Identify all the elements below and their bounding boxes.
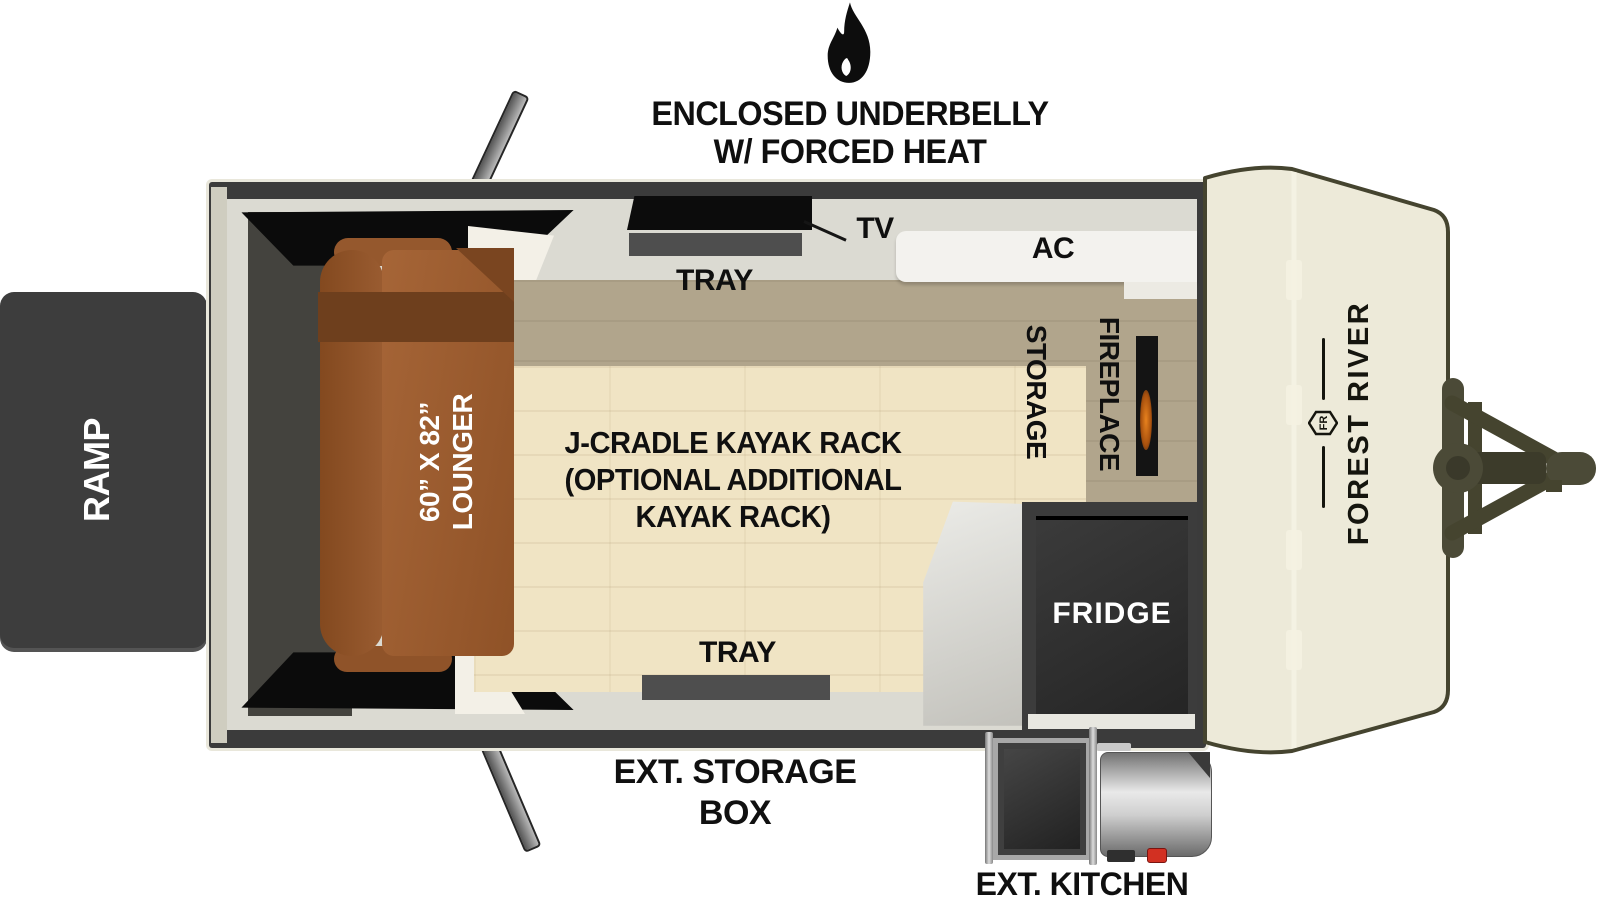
flame-icon (818, 0, 880, 92)
lounger-name: LOUNGER (446, 352, 479, 572)
tray-top-label: TRAY (637, 264, 792, 298)
ext-kitchen-rail-top (1097, 743, 1131, 751)
fridge-floor-strip (1028, 714, 1195, 729)
brand-rule-left (1322, 446, 1325, 508)
ramp-label: RAMP (77, 370, 117, 570)
tray-bottom-label: TRAY (660, 636, 815, 670)
feature-title-line1: ENCLOSED UNDERBELLY (575, 96, 1126, 133)
ext-kitchen-unit-door (998, 743, 1086, 855)
rear-wall-strip (211, 187, 227, 743)
fr-monogram-icon: FR (1308, 410, 1338, 436)
fireplace-flame (1140, 390, 1152, 450)
fr-monogram-text: FR (1318, 416, 1330, 431)
tv-label: TV (840, 212, 910, 246)
ext-kitchen-griddle (1100, 752, 1212, 857)
kayak-note-line3: KAYAK RACK) (531, 498, 935, 535)
ext-kitchen-knob (1147, 848, 1167, 863)
kayak-note-line2: (OPTIONAL ADDITIONAL (531, 461, 935, 498)
fireplace-label: FIREPLACE (1095, 294, 1125, 494)
storage-label: STORAGE (1022, 297, 1052, 487)
lounger-size: 60” X 82” (413, 352, 446, 572)
brand-lockup: FR FOREST RIVER (1308, 258, 1372, 588)
ext-kitchen-label: EXT. KITCHEN (927, 866, 1237, 902)
brand-rule-row: FR (1308, 338, 1338, 508)
ext-storage-box-label: EXT. STORAGE BOX (580, 752, 890, 834)
ext-kitchen-rail-mid (1089, 727, 1097, 865)
ext-storage-line1: EXT. STORAGE (580, 752, 890, 793)
tray-top (629, 233, 802, 256)
ext-kitchen-rail-left (985, 732, 993, 864)
ac-shelf-step (1124, 282, 1197, 299)
kayak-note: J-CRADLE KAYAK RACK (OPTIONAL ADDITIONAL… (531, 424, 935, 535)
tv (627, 196, 812, 230)
brand-rule-right (1322, 338, 1325, 400)
brand-name: FOREST RIVER (1343, 301, 1376, 545)
ext-kitchen-unit (993, 738, 1091, 860)
tray-bottom (642, 675, 830, 700)
fridge-label: FRIDGE (1032, 597, 1192, 631)
lounger-label: 60” X 82” LOUNGER (413, 352, 483, 572)
lounger: 60” X 82” LOUNGER (316, 238, 516, 660)
ext-storage-line2: BOX (580, 793, 890, 834)
lounger-fold-band (318, 292, 514, 342)
open-door-leaf-bottom (480, 741, 541, 853)
kayak-note-line1: J-CRADLE KAYAK RACK (531, 424, 935, 461)
ac-label: AC (1008, 232, 1098, 266)
floorplan-canvas: ENCLOSED UNDERBELLY W/ FORCED HEAT RAMP … (0, 0, 1600, 902)
hitch-tongue (1428, 358, 1600, 583)
ext-kitchen-foot (1107, 850, 1135, 862)
feature-title-line2: W/ FORCED HEAT (575, 134, 1126, 171)
